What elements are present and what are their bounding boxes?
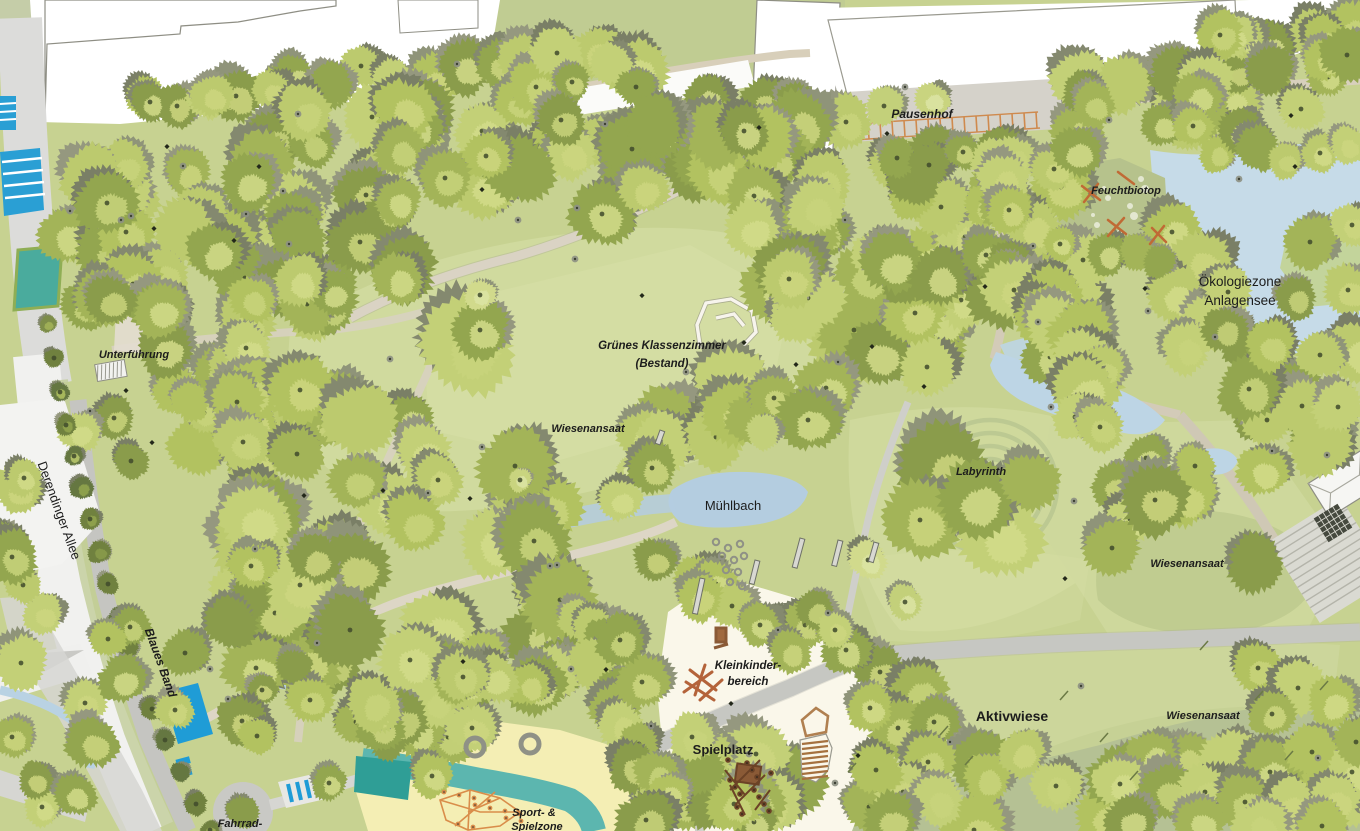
svg-text:Spielplatz: Spielplatz: [693, 742, 754, 757]
svg-text:Ökologiezone: Ökologiezone: [1199, 274, 1282, 289]
svg-text:Wiesenansaat: Wiesenansaat: [551, 423, 626, 435]
svg-text:Pausenhof: Pausenhof: [891, 107, 953, 121]
svg-text:Kleinkinder-: Kleinkinder-: [715, 660, 782, 672]
svg-text:Unterführung: Unterführung: [99, 349, 170, 361]
svg-text:bereich: bereich: [728, 676, 769, 688]
svg-text:Labyrinth: Labyrinth: [956, 466, 1006, 478]
svg-text:(Bestand): (Bestand): [635, 358, 688, 370]
svg-text:Aktivwiese: Aktivwiese: [976, 708, 1049, 724]
svg-text:Wiesenansaat: Wiesenansaat: [1150, 558, 1225, 570]
svg-text:Sport- &: Sport- &: [512, 807, 555, 819]
svg-text:Fahrrad-: Fahrrad-: [218, 818, 263, 830]
svg-text:Mühlbach: Mühlbach: [705, 498, 761, 513]
svg-text:Anlagensee: Anlagensee: [1204, 293, 1275, 308]
svg-text:Spielzone: Spielzone: [511, 821, 562, 831]
svg-text:Grünes Klassenzimmer: Grünes Klassenzimmer: [598, 340, 726, 352]
svg-text:Feuchtbiotop: Feuchtbiotop: [1091, 185, 1161, 197]
svg-text:Wiesenansaat: Wiesenansaat: [1166, 710, 1241, 722]
